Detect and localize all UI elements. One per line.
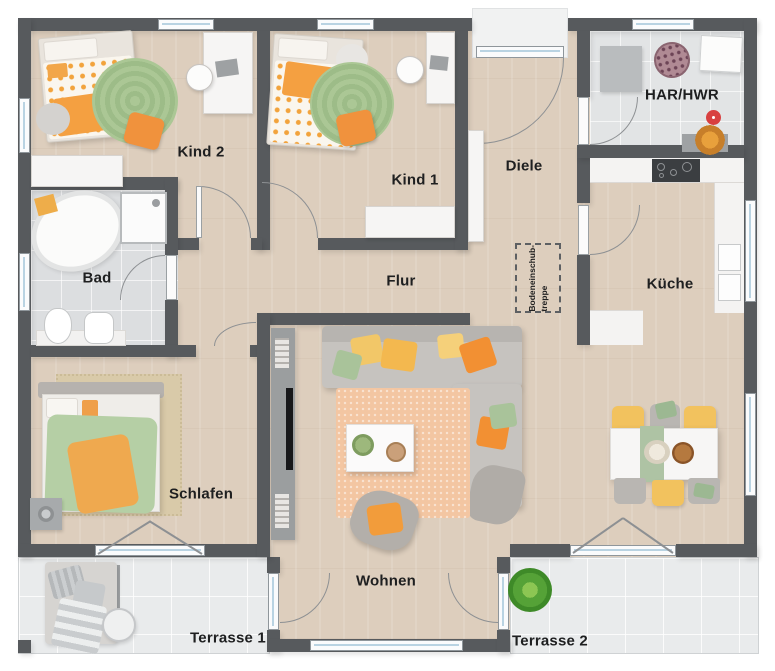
schlafen-bed [38,382,164,516]
cushion-orange-3 [366,502,404,536]
har-red-bucket [706,110,721,125]
door-terrasse1 [268,573,279,630]
table-flowers [644,440,670,464]
floor-plan: Bodeneinschub- treppe ELT [0,0,775,671]
window-har-north [632,19,694,30]
attic-stairs-line1: Bodeneinschub- [527,245,537,312]
har-door-leaf [578,97,589,145]
window-dining-east [745,393,756,496]
wall-dining-south-a [510,544,570,557]
diele-wardrobe [468,130,484,242]
kueche-flower-decor [695,125,725,155]
kind2-door-leaf [196,186,202,238]
shelf-books-top [275,338,289,368]
har-cabinet [600,46,642,92]
wall-corridor-north-b [251,238,262,250]
kueche-cooktop [652,159,700,182]
terrasse1-blanket [51,598,108,655]
wall-corridor-north-a [178,238,199,250]
bad-shower [120,192,167,244]
wall-corridor-north-c [318,238,468,250]
label-kueche: Küche [647,276,694,293]
fruit-bowl [672,442,694,464]
shower-drain [152,199,160,207]
label-terrasse1: Terrasse 1 [190,630,266,647]
burner-2 [670,169,677,176]
door-terrasse2 [498,573,509,630]
window-bad-west [19,253,30,311]
shelf-books-bottom [275,494,289,528]
burner-3 [682,162,692,172]
label-schlafen: Schlafen [169,486,233,503]
kind1-desk-chair [396,56,424,84]
attic-stairs-line2: treppe [539,285,549,311]
terrasse2-plant [508,568,552,612]
kind1-laptop [429,55,448,71]
front-door [476,46,564,58]
window-kind1-north [317,19,374,30]
window-kueche-east [745,200,756,302]
label-kind2: Kind 2 [177,144,224,161]
burner-4 [659,173,664,178]
label-wohnen: Wohnen [356,573,416,590]
kind2-desk-chair [186,64,213,91]
tv-screen [286,388,293,470]
dining-chair-bottom-2 [652,480,684,506]
wall-corridor-south [257,313,470,325]
schlafen-lamp [38,506,54,522]
wall-dining-south-b [676,544,757,557]
cushion-green-2 [488,402,517,429]
window-kind2-west [19,98,30,153]
kueche-sink-2 [718,274,741,301]
label-kind1: Kind 1 [391,172,438,189]
bad-door-leaf [166,255,177,300]
terrasse1-corner-block [18,640,31,653]
kueche-counter-south [590,310,643,345]
kind2-pillow-orange [47,63,68,79]
kueche-sink-1 [718,244,741,271]
label-bad: Bad [83,270,112,287]
terrasse1-side-table [102,608,136,642]
burner-1 [657,163,665,171]
label-flur: Flur [386,273,415,290]
bad-toilet [44,308,72,344]
wall-diele-west [455,31,468,250]
cushion-yellow-2 [380,338,418,372]
attic-stairs-hatch: Bodeneinschub- treppe [515,243,561,313]
bad-bidet [84,312,114,344]
kind2-laptop [215,59,239,78]
schlafen-throw-orange [66,433,140,515]
kind1-pillow [277,37,328,60]
table-tray [386,442,406,462]
kind2-flower-rug [36,103,70,135]
label-terrasse2: Terrasse 2 [512,633,588,650]
french-door-dining [570,545,676,556]
wall-wohnen-west-a [267,557,280,573]
dining-chair-bottom-1 [614,478,646,504]
wall-top-left [18,18,472,31]
window-wohnen-south [310,640,463,651]
har-washer [699,35,743,73]
table-plant [352,434,374,456]
kind1-wardrobe [365,206,455,238]
wall-schlafen-east [257,313,270,557]
tv-shelf [271,328,295,540]
window-kind2-north [158,19,214,30]
attic-stairs-label: Bodeneinschub- treppe [526,245,551,312]
wall-terrasse2-west-a [497,557,510,573]
label-har-hwr: HAR/HWR [645,87,719,104]
kind2-wardrobe [31,155,123,187]
wall-har-west [577,31,590,97]
wall-kueche-west-low [577,255,590,345]
label-diele: Diele [506,158,543,175]
wall-terrasse2-west-b [497,630,510,652]
wall-schlafen-north-a [31,345,196,357]
kueche-door-leaf [578,205,589,255]
